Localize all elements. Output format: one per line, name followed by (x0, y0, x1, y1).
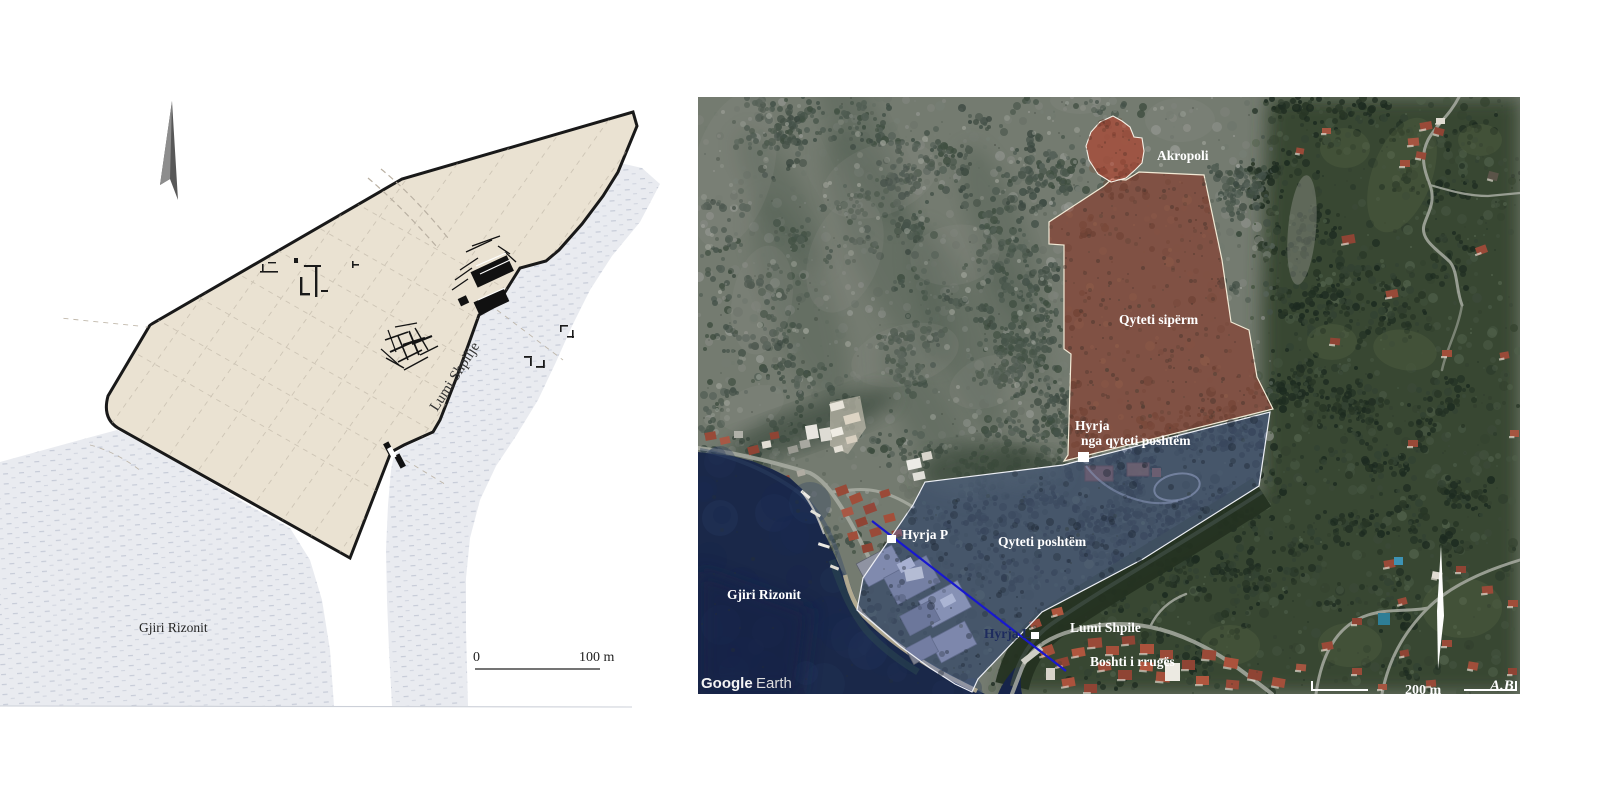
svg-text:Gjiri Rizonit: Gjiri Rizonit (139, 620, 208, 635)
svg-text:100 m: 100 m (579, 650, 615, 665)
svg-text:0: 0 (473, 650, 480, 665)
